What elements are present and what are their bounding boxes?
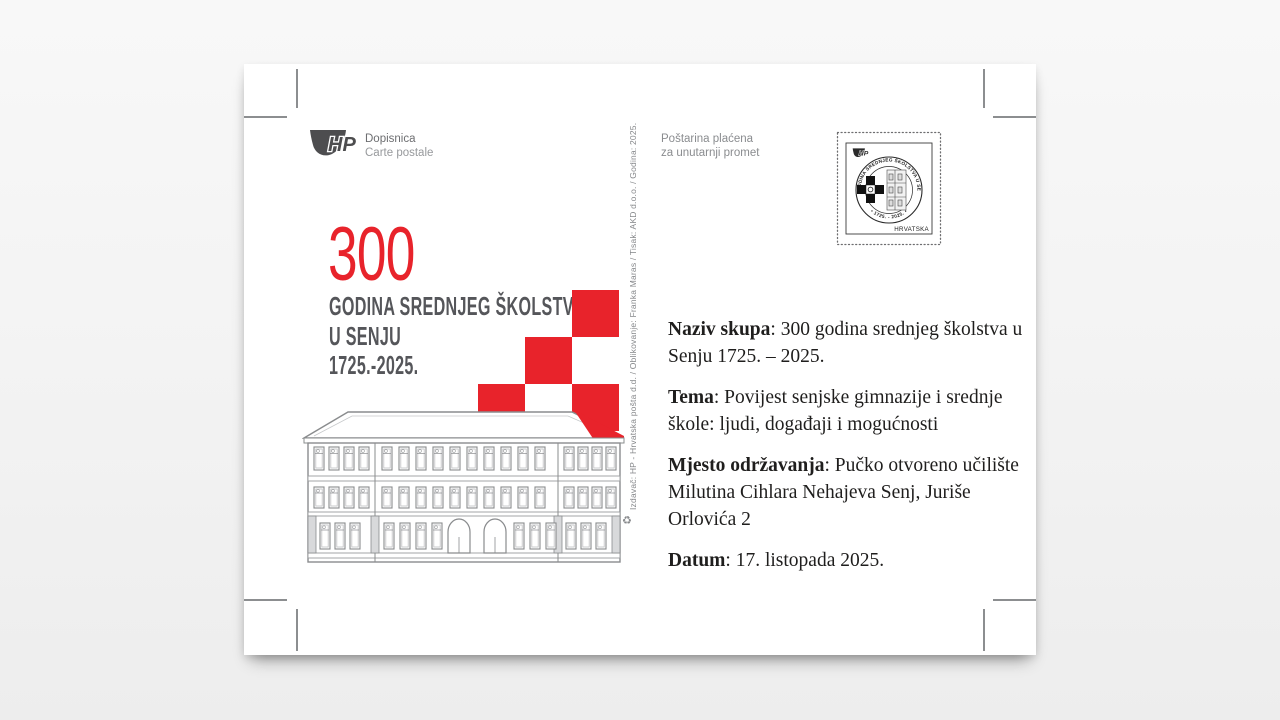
crop-mark-top-right-vertical [983,69,985,108]
checker-square [572,290,619,337]
svg-text:HP: HP [328,134,356,156]
postcard: HP Dopisnica Carte postale Poštarina pla… [244,64,1036,655]
detail-label: Mjesto održavanja [668,455,825,476]
detail-label: Datum [668,550,725,571]
hp-posthorn-icon: HP [308,126,366,168]
postage-line-2: za unutarnji promet [661,146,759,160]
detail-label: Naziv skupa [668,319,770,340]
anniversary-number: 300 [328,219,415,291]
detail-datum: Datum: 17. listopada 2025. [668,547,1034,574]
publisher-imprint: Izdavač: HP - Hrvatska pošta d.d. / Obli… [628,188,638,510]
school-building-illustration [302,405,632,565]
card-type-croatian: Dopisnica [365,132,433,146]
card-type-label: Dopisnica Carte postale [365,132,433,160]
postage-stamp: HP 300 GODINA SREDNJEG ŠKOLSTVA U SENJU … [835,130,943,247]
postage-paid-notice: Poštarina plaćena za unutarnji promet [661,132,759,160]
crop-mark-bottom-left-horizontal [244,599,287,601]
crop-mark-top-left-horizontal [244,116,287,118]
detail-tema: Tema: Povijest senjske gimnazije i sredn… [668,384,1034,438]
checker-square [525,337,572,384]
detail-naziv-skupa: Naziv skupa: 300 godina srednjeg školstv… [668,316,1034,370]
svg-text:HP: HP [859,151,869,158]
detail-mjesto: Mjesto održavanja: Pučko otvoreno učiliš… [668,452,1034,533]
postage-line-1: Poštarina plaćena [661,132,759,146]
detail-label: Tema [668,387,714,408]
recycle-icon: ♻ [622,514,632,527]
crop-mark-bottom-right-vertical [983,609,985,651]
stamp-country-label: HRVATSKA [894,226,929,233]
stamp-building-detail [887,170,906,210]
page-background: HP Dopisnica Carte postale Poštarina pla… [0,0,1280,720]
detail-text: : 17. listopada 2025. [725,550,884,571]
title-line-1: GODINA SREDNJEG ŠKOLSTVA [329,292,585,322]
crop-mark-top-left-vertical [296,69,298,108]
card-type-french: Carte postale [365,146,433,160]
crop-mark-bottom-right-horizontal [993,599,1036,601]
crop-mark-top-right-horizontal [993,116,1036,118]
crop-mark-bottom-left-vertical [296,609,298,651]
detail-text: : Povijest senjske gimnazije i srednje š… [668,387,1003,435]
event-details: Naziv skupa: 300 godina srednjeg školstv… [668,316,1034,588]
